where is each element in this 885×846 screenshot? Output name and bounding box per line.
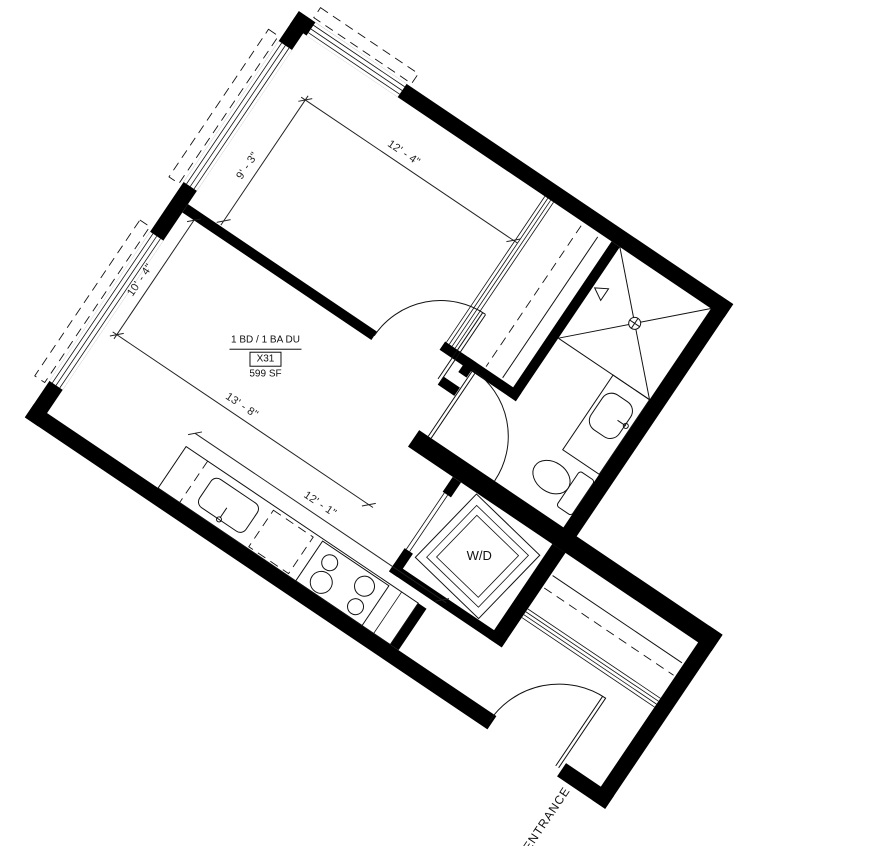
unit-area-label: 599 SF bbox=[205, 368, 325, 382]
wd-bifold-door bbox=[406, 493, 447, 552]
kitchen-counter bbox=[158, 447, 418, 645]
overhang-dashed-left-upper bbox=[169, 29, 278, 183]
kitchen-faucet bbox=[216, 516, 223, 523]
bedroom-closet-shelf bbox=[503, 237, 598, 378]
dimension-bedroom-depth: 9' - 3" bbox=[234, 150, 261, 182]
overhang-dashed-left-lower bbox=[35, 220, 150, 383]
entry-closet-shelf bbox=[553, 576, 682, 663]
dimension-living-width: 13' - 8" bbox=[223, 390, 260, 420]
wall-kitchen-end-stub bbox=[390, 603, 426, 650]
wall-closet-shower bbox=[508, 241, 620, 401]
washer-dryer-label: W/D bbox=[453, 548, 505, 563]
entrance-door bbox=[489, 651, 606, 768]
entrance-door-leaf bbox=[556, 696, 603, 766]
bathroom-faucet bbox=[622, 422, 629, 429]
wall-bedroom-living-stub bbox=[438, 376, 460, 395]
window-top-opening bbox=[306, 22, 406, 97]
bathroom-door-leaf bbox=[428, 370, 473, 436]
floor-plan: 12' - 4" 9' - 3" 10' - 4" 13' - 8" 12' -… bbox=[25, 11, 879, 809]
dimension-bedroom-width: 12' - 4" bbox=[385, 138, 422, 168]
bedroom-closet-sliding-door bbox=[446, 196, 553, 348]
entrance-door-arc bbox=[489, 651, 606, 768]
shower-drain bbox=[626, 315, 643, 332]
dimension-kitchen-run: 12' - 1" bbox=[301, 489, 338, 519]
unit-number-box: X31 bbox=[250, 351, 282, 367]
wall-bedroom-living bbox=[182, 204, 377, 340]
entrance-label: ENTRANCE bbox=[520, 784, 573, 846]
entry-closet-sliding-door bbox=[522, 609, 661, 707]
toilet-bowl bbox=[527, 453, 577, 500]
unit-type-label: 1 BD / 1 BA DU bbox=[229, 334, 302, 350]
wall-plumbing-bath-bottom bbox=[408, 430, 723, 651]
bedroom-closet-rod bbox=[486, 226, 581, 367]
window-left-living-opening bbox=[49, 232, 163, 390]
wall-exterior-right-wing bbox=[592, 626, 723, 809]
wall-exterior-right-upper bbox=[552, 295, 733, 553]
floor-plan-stage: 12' - 4" 9' - 3" 10' - 4" 13' - 8" 12' -… bbox=[0, 0, 885, 846]
wall-wd-left-stub-top bbox=[443, 477, 461, 498]
unit-label: 1 BD / 1 BA DU X31 599 SF bbox=[205, 334, 325, 382]
shower-pan bbox=[558, 247, 711, 400]
